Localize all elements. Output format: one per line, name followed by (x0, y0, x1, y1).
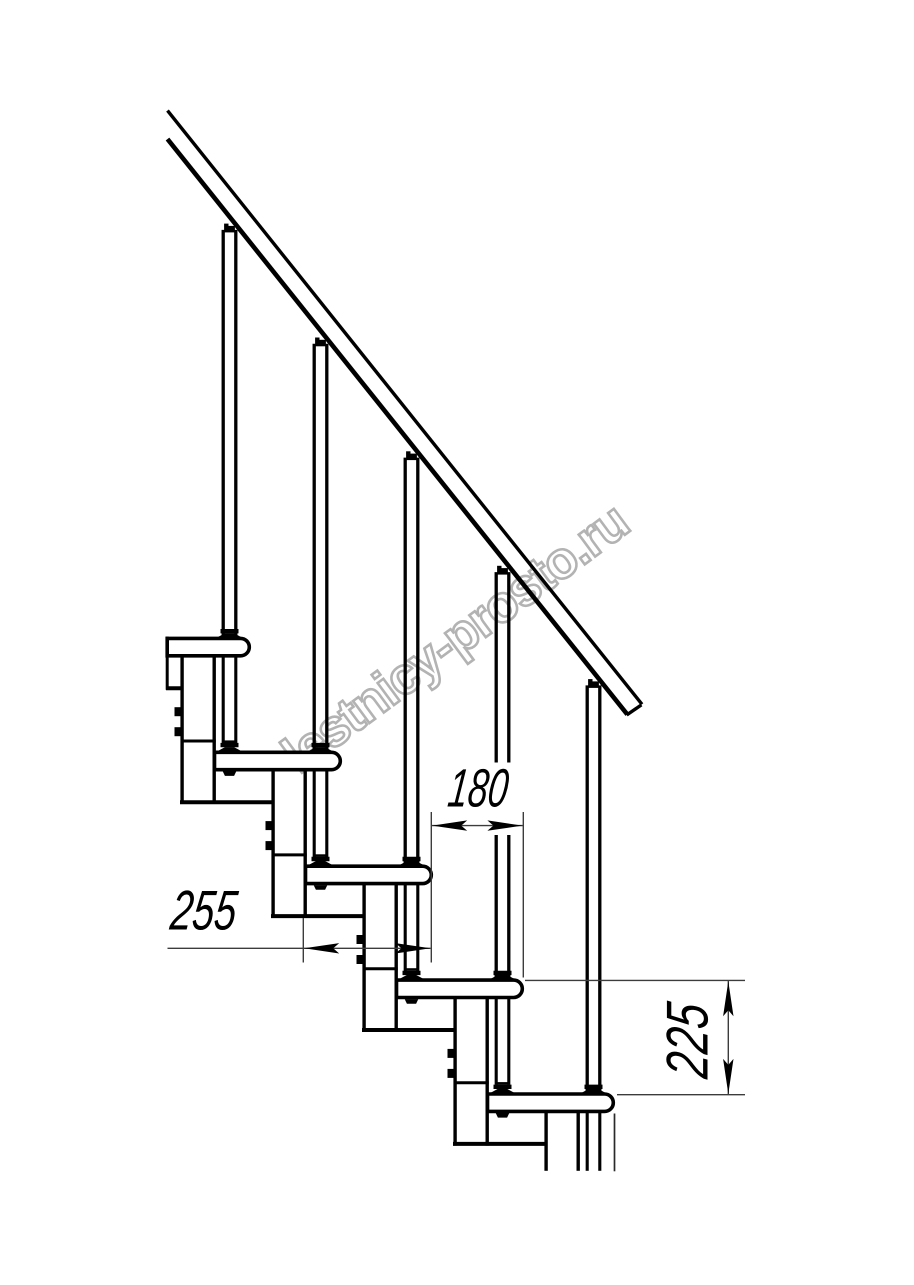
svg-text:225: 225 (656, 999, 721, 1082)
svg-text:180: 180 (445, 757, 512, 818)
svg-text:255: 255 (167, 880, 242, 942)
